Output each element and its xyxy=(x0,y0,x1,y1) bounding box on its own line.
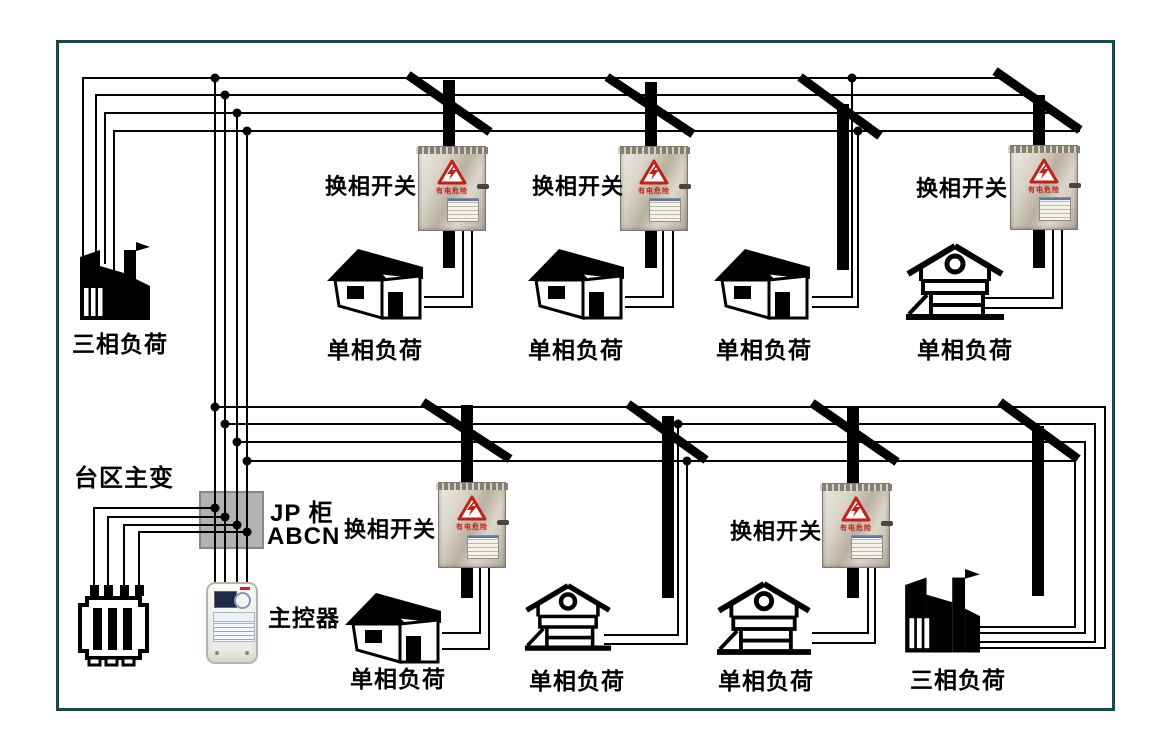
label-load-top-4: 单相负荷 xyxy=(895,338,1035,362)
label-switch-bottom-1: 换相开关 xyxy=(306,518,436,541)
nameplate xyxy=(851,535,883,559)
switch-box-top-2: 有电危险 xyxy=(620,146,688,231)
label-load-top-3: 单相负荷 xyxy=(694,338,834,362)
house-top-3 xyxy=(714,249,810,318)
switch-box-flange xyxy=(618,147,690,154)
nameplate xyxy=(1039,197,1071,221)
warning-text: 有电危险 xyxy=(439,522,505,532)
screw xyxy=(215,651,219,655)
house-bottom-1 xyxy=(345,593,441,662)
switch-box-flange xyxy=(820,484,892,491)
screw xyxy=(245,651,249,655)
warning-text: 有电危险 xyxy=(419,186,485,196)
warning-text: 有电危险 xyxy=(621,186,687,196)
label-load-bottom-factory: 三相负荷 xyxy=(888,668,1028,692)
factory-bottom-right xyxy=(905,569,980,652)
switch-box-top-3: 有电危险 xyxy=(1010,145,1078,230)
electric-danger-icon xyxy=(457,495,487,521)
main-controller-device xyxy=(206,582,258,664)
switch-box-flange xyxy=(436,483,508,490)
wiring-svg xyxy=(0,0,1162,751)
nameplate xyxy=(447,198,479,222)
label-load-top-factory: 三相负荷 xyxy=(50,332,190,356)
electric-danger-icon xyxy=(1029,158,1059,184)
label-load-bottom-1: 单相负荷 xyxy=(328,667,468,691)
controller-dial xyxy=(234,592,251,609)
electric-danger-icon xyxy=(639,159,669,185)
door-handle xyxy=(497,520,509,525)
label-load-top-1: 单相负荷 xyxy=(305,338,445,362)
warning-text: 有电危险 xyxy=(823,523,889,533)
label-main-controller: 主控器 xyxy=(268,606,340,630)
controller-label-strip xyxy=(213,612,255,622)
label-switch-bottom-2: 换相开关 xyxy=(692,520,822,543)
switch-box-bottom-1: 有电危险 xyxy=(438,482,506,568)
villa-bottom-3 xyxy=(717,584,811,652)
switch-box-flange xyxy=(1008,146,1080,153)
nameplate xyxy=(467,535,499,559)
controller-mark xyxy=(240,587,250,590)
door-handle xyxy=(679,184,691,189)
label-switch-top-2: 换相开关 xyxy=(494,175,624,198)
house-top-2 xyxy=(528,249,624,318)
controller-nameplate xyxy=(213,623,255,642)
door-handle xyxy=(881,521,893,526)
switch-box-bottom-2: 有电危险 xyxy=(822,483,890,568)
label-transformer: 台区主变 xyxy=(74,466,174,491)
jp-cabinet-box xyxy=(200,492,263,548)
door-handle xyxy=(1069,183,1081,188)
villa-bottom-2 xyxy=(525,586,611,648)
transformer-icon xyxy=(80,585,147,665)
conductor-wires xyxy=(83,78,1105,649)
villa-top-4 xyxy=(906,246,1004,317)
label-load-top-2: 单相负荷 xyxy=(506,338,646,362)
label-load-bottom-2: 单相负荷 xyxy=(507,669,647,693)
house-top-1 xyxy=(327,249,423,318)
switch-box-top-1: 有电危险 xyxy=(418,146,486,231)
door-handle xyxy=(477,184,489,189)
warning-text: 有电危险 xyxy=(1011,185,1077,195)
label-switch-top-3: 换相开关 xyxy=(878,177,1008,200)
diagram-canvas: 有电危险 有电危险 有电危险 有电危险 xyxy=(0,0,1162,751)
electric-danger-icon xyxy=(841,496,871,522)
label-switch-top-1: 换相开关 xyxy=(287,175,417,198)
electric-danger-icon xyxy=(437,159,467,185)
nameplate xyxy=(649,198,681,222)
switch-box-flange xyxy=(416,147,488,154)
label-load-bottom-3: 单相负荷 xyxy=(696,669,836,693)
